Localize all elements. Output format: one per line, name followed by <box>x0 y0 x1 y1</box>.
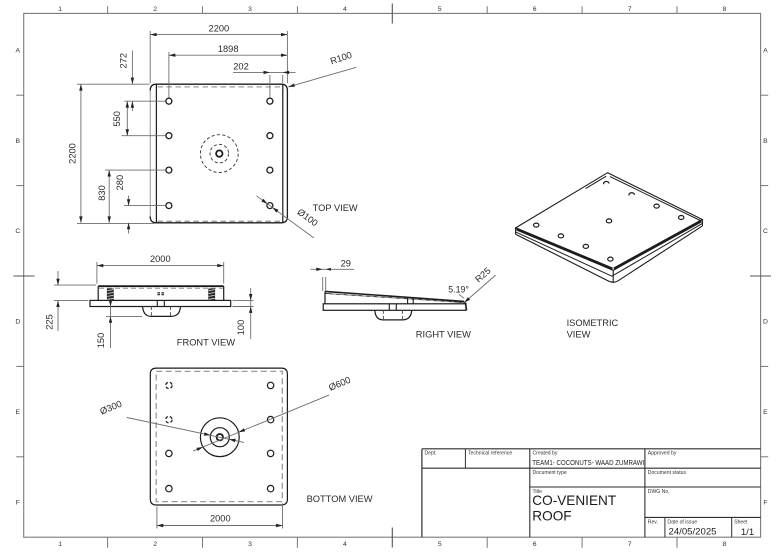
svg-text:TOP VIEW: TOP VIEW <box>313 203 358 213</box>
svg-text:1: 1 <box>58 6 62 13</box>
svg-text:8: 8 <box>723 6 727 13</box>
svg-text:550: 550 <box>112 111 122 127</box>
svg-text:202: 202 <box>233 61 249 71</box>
svg-text:CO-VENIENT: CO-VENIENT <box>532 493 616 508</box>
svg-text:B: B <box>16 138 21 145</box>
svg-text:5: 5 <box>438 6 442 13</box>
svg-text:2: 2 <box>153 541 157 548</box>
svg-text:Document status: Document status <box>648 470 687 476</box>
svg-text:100: 100 <box>236 320 246 336</box>
svg-text:Sheet: Sheet <box>734 519 748 525</box>
svg-text:1/1: 1/1 <box>741 527 754 538</box>
svg-text:Approved by: Approved by <box>648 451 677 457</box>
svg-text:4: 4 <box>343 6 347 13</box>
svg-text:7: 7 <box>628 6 632 13</box>
svg-text:A: A <box>763 47 768 54</box>
svg-text:DWG No.: DWG No. <box>648 489 670 495</box>
svg-text:2: 2 <box>153 6 157 13</box>
svg-text:E: E <box>16 409 21 416</box>
svg-text:Rev.: Rev. <box>648 519 658 525</box>
svg-text:VIEW: VIEW <box>567 329 591 339</box>
svg-text:5.19°: 5.19° <box>448 285 469 295</box>
svg-text:F: F <box>763 499 767 506</box>
svg-text:4: 4 <box>343 541 347 548</box>
svg-text:830: 830 <box>97 185 107 201</box>
svg-text:A: A <box>16 47 21 54</box>
svg-text:ROOF: ROOF <box>532 509 571 524</box>
svg-text:Created by: Created by <box>533 451 558 457</box>
svg-text:1: 1 <box>58 541 62 548</box>
svg-text:C: C <box>15 228 20 235</box>
svg-text:D: D <box>763 319 768 326</box>
svg-text:Document type: Document type <box>533 470 567 476</box>
svg-text:2200: 2200 <box>209 24 230 34</box>
svg-text:29: 29 <box>341 259 351 269</box>
svg-text:7: 7 <box>628 541 632 548</box>
svg-text:3: 3 <box>248 541 252 548</box>
svg-text:150: 150 <box>96 333 106 349</box>
svg-text:Date of issue: Date of issue <box>667 519 697 525</box>
svg-text:1898: 1898 <box>218 44 239 54</box>
svg-text:2200: 2200 <box>68 143 78 164</box>
svg-text:Dept.: Dept. <box>425 451 437 457</box>
svg-text:8: 8 <box>723 541 727 548</box>
svg-text:3: 3 <box>248 6 252 13</box>
svg-text:E: E <box>763 409 768 416</box>
svg-text:24/05/2025: 24/05/2025 <box>669 526 717 537</box>
svg-text:280: 280 <box>115 175 125 191</box>
svg-text:D: D <box>15 319 20 326</box>
svg-text:ISOMETRIC: ISOMETRIC <box>567 318 619 328</box>
svg-text:F: F <box>16 499 20 506</box>
svg-text:2000: 2000 <box>150 254 171 264</box>
svg-text:Technical reference: Technical reference <box>468 451 512 457</box>
svg-text:5: 5 <box>438 541 442 548</box>
svg-text:C: C <box>763 228 768 235</box>
svg-text:TEAM1- COCONUTS- WAAD ZUMRAWI: TEAM1- COCONUTS- WAAD ZUMRAWI <box>532 458 644 467</box>
svg-text:225: 225 <box>44 314 54 330</box>
svg-text:272: 272 <box>119 53 129 69</box>
svg-text:RIGHT VIEW: RIGHT VIEW <box>416 330 471 340</box>
svg-text:BOTTOM VIEW: BOTTOM VIEW <box>307 494 373 504</box>
svg-text:6: 6 <box>533 541 537 548</box>
svg-text:B: B <box>763 138 768 145</box>
svg-text:FRONT VIEW: FRONT VIEW <box>177 337 235 347</box>
svg-text:6: 6 <box>533 6 537 13</box>
svg-text:2000: 2000 <box>210 514 231 524</box>
